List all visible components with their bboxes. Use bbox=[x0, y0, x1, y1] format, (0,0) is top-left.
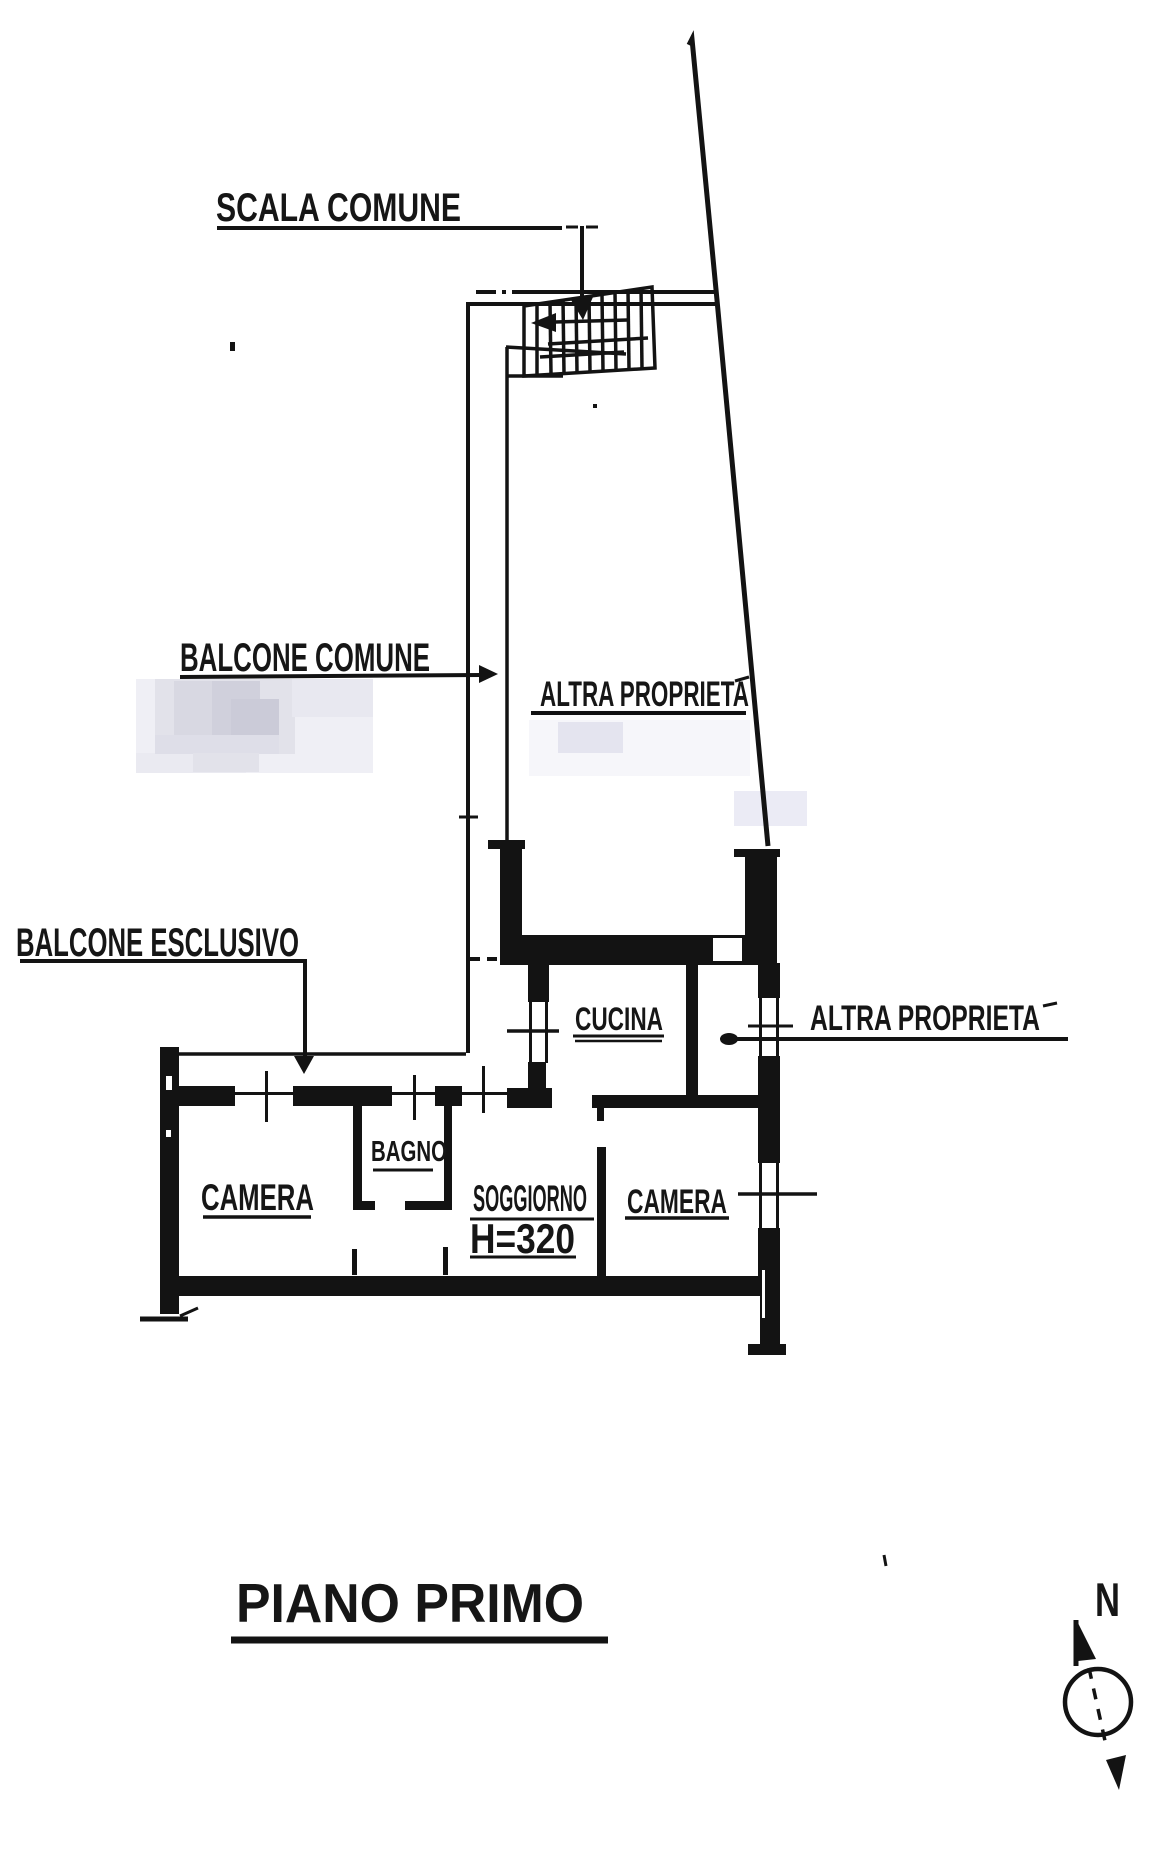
svg-text:SOGGIORNO: SOGGIORNO bbox=[473, 1178, 587, 1219]
svg-text:BALCONE COMUNE: BALCONE COMUNE bbox=[180, 636, 430, 680]
svg-text:H=320: H=320 bbox=[470, 1215, 575, 1262]
svg-text:BAGNO: BAGNO bbox=[371, 1136, 447, 1168]
svg-text:CAMERA: CAMERA bbox=[201, 1177, 314, 1218]
svg-text:CAMERA: CAMERA bbox=[627, 1183, 727, 1221]
svg-text:N: N bbox=[1095, 1573, 1120, 1626]
svg-text:CUCINA: CUCINA bbox=[575, 1001, 663, 1037]
svg-text:PIANO PRIMO: PIANO PRIMO bbox=[236, 1572, 584, 1634]
svg-text:SCALA COMUNE: SCALA COMUNE bbox=[216, 186, 461, 230]
svg-text:ALTRA PROPRIETA: ALTRA PROPRIETA bbox=[540, 675, 749, 714]
svg-text:BALCONE ESCLUSIVO: BALCONE ESCLUSIVO bbox=[16, 921, 299, 965]
svg-text:ALTRA PROPRIETA: ALTRA PROPRIETA bbox=[810, 999, 1040, 1038]
